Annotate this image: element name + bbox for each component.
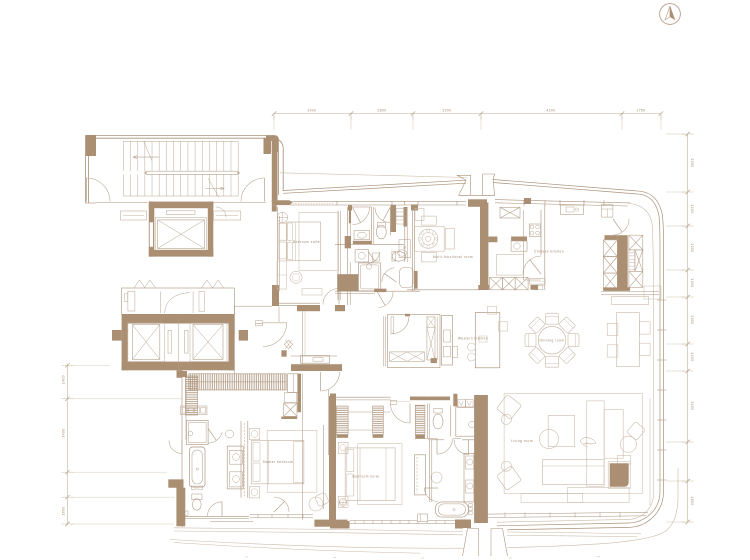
svg-text:4200: 4200 — [546, 109, 555, 113]
svg-text:1400: 1400 — [690, 204, 694, 213]
svg-text:1400: 1400 — [61, 375, 65, 384]
svg-text:2800: 2800 — [377, 109, 386, 113]
svg-text:1300: 1300 — [690, 278, 694, 287]
svg-text:Living room: Living room — [511, 439, 533, 443]
svg-text:Chinese kitchen: Chinese kitchen — [534, 250, 564, 254]
svg-text:2200: 2200 — [690, 243, 694, 252]
svg-text:1400: 1400 — [690, 352, 694, 361]
svg-text:3200: 3200 — [442, 109, 451, 113]
svg-text:3400: 3400 — [307, 109, 316, 113]
svg-text:2900: 2900 — [690, 158, 694, 167]
svg-text:2300: 2300 — [690, 315, 694, 324]
svg-text:Bedroom suite: Bedroom suite — [293, 240, 320, 244]
svg-text:1800: 1800 — [61, 506, 65, 515]
svg-text:3400: 3400 — [690, 401, 694, 410]
svg-text:1750: 1750 — [636, 109, 645, 113]
svg-text:Dinning room: Dinning room — [540, 339, 565, 343]
svg-text:Multi-functional room: Multi-functional room — [433, 255, 473, 259]
svg-text:Master bedroom: Master bedroom — [263, 460, 293, 464]
svg-text:Bedroom suite: Bedroom suite — [352, 475, 379, 479]
svg-text:Western kitchen: Western kitchen — [458, 337, 488, 341]
svg-text:3400: 3400 — [61, 428, 65, 437]
svg-text:1800: 1800 — [690, 496, 694, 505]
